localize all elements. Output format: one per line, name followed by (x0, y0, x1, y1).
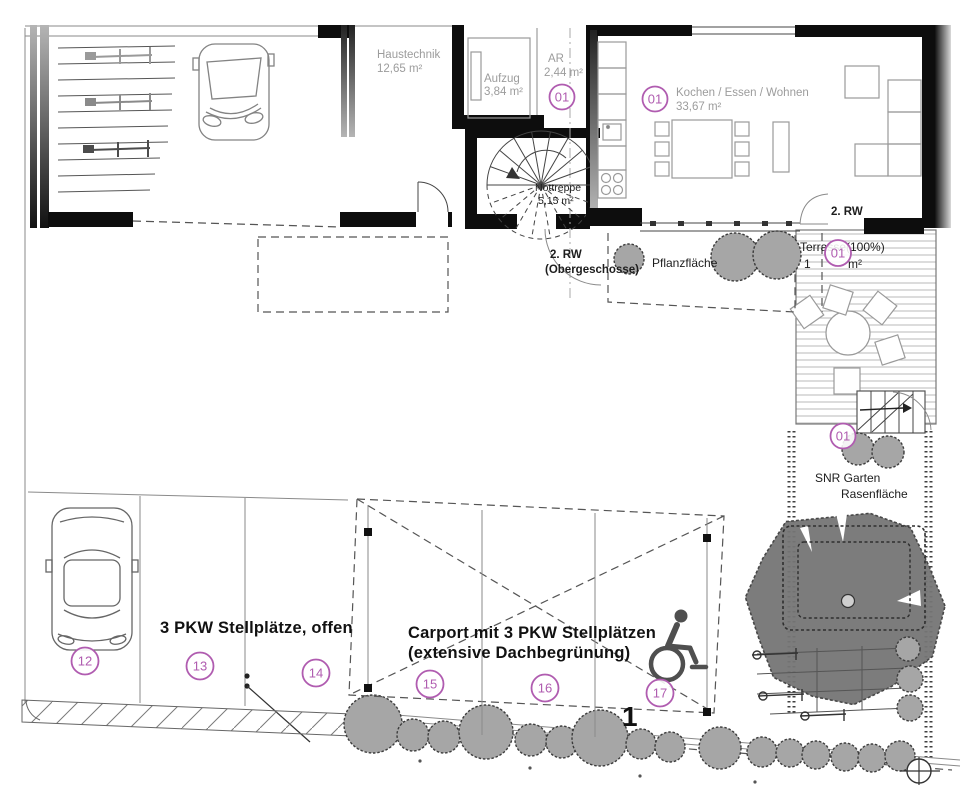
unit-badge-ar: 01 (550, 85, 575, 110)
garage (30, 25, 355, 228)
svg-text:16: 16 (538, 681, 552, 696)
room-area-haustechnik: 12,65 m² (377, 63, 423, 75)
room-label-wohnen: Kochen / Essen / Wohnen (676, 87, 809, 99)
svg-text:13: 13 (193, 659, 207, 674)
parking-badge-14: 14 (303, 660, 330, 687)
upper-floor-outline-dashed (258, 237, 448, 312)
unit-badge-garten: 01 (831, 424, 856, 449)
parking-badge-13: 13 (187, 653, 214, 680)
room-area-aufzug: 3,84 m² (484, 86, 523, 98)
wheelchair-icon (651, 610, 706, 681)
label-rw-stair: 2. RW (550, 249, 582, 261)
svg-text:01: 01 (555, 90, 569, 105)
room-area-nottreppe: 5,15 m² (538, 195, 574, 207)
label-rasenflaeche: Rasenfläche (841, 487, 908, 501)
sideboard (773, 122, 789, 172)
svg-text:01: 01 (836, 429, 850, 444)
car-top-view (46, 508, 138, 650)
sidewalk-hatched-strip (22, 700, 352, 736)
parking-badge-12: 12 (72, 648, 99, 675)
carport-post (703, 708, 711, 716)
carport-post (703, 534, 711, 542)
tree-trunk (842, 595, 855, 608)
kitchen-counter (598, 42, 626, 198)
svg-text:14: 14 (309, 666, 323, 681)
label-pflanzflaeche: Pflanzfläche (652, 256, 718, 270)
room-label-haustechnik: Haustechnik (377, 49, 441, 61)
carport-post (364, 684, 372, 692)
unit-badge-wohnen: 01 (643, 87, 668, 112)
label-snr-garten: SNR Garten (815, 471, 880, 485)
svg-text:12: 12 (78, 654, 92, 669)
room-label-ar: AR (548, 53, 564, 65)
bike-rack-lines (58, 46, 175, 192)
label-terrasse-area-prefix: 1 (804, 257, 811, 271)
terrace (790, 230, 936, 433)
room-area-wohnen: 33,67 m² (676, 101, 722, 113)
parking-badge-17: 17 (647, 680, 674, 707)
parking-badge-16: 16 (532, 675, 559, 702)
bush (753, 231, 801, 279)
label-terrasse-area-unit: m² (848, 257, 862, 271)
svg-text:17: 17 (653, 686, 667, 701)
label-rw-top: 2. RW (831, 206, 863, 218)
sofa-set (845, 66, 921, 176)
carport-post (364, 528, 372, 536)
svg-text:01: 01 (648, 92, 662, 107)
dining-set (655, 120, 749, 178)
label-rw-stair-2: (Obergeschosse) (545, 264, 639, 276)
label-marker-1: 1 (622, 701, 638, 732)
svg-text:01: 01 (831, 246, 845, 261)
window-band (640, 221, 800, 231)
parking-badge-15: 15 (417, 671, 444, 698)
car-front-view (193, 44, 274, 140)
floor-plan-page: Haustechnik 12,65 m² Aufzug 3,84 m² AR 2… (0, 0, 974, 804)
label-carport-2: (extensive Dachbegrünung) (408, 644, 630, 662)
kitchen-living (586, 25, 951, 234)
label-carport-1: Carport mit 3 PKW Stellplätzen (408, 624, 656, 642)
label-stellplaetze-offen: 3 PKW Stellplätze, offen (160, 619, 353, 637)
room-label-nottreppe: Nottreppe (535, 182, 581, 194)
floor-plan-drawing: Haustechnik 12,65 m² Aufzug 3,84 m² AR 2… (0, 0, 974, 804)
room-area-ar: 2,44 m² (544, 67, 583, 79)
stove (598, 170, 626, 198)
bush (872, 436, 904, 468)
svg-text:15: 15 (423, 677, 437, 692)
room-label-aufzug: Aufzug (484, 73, 520, 85)
bush (711, 233, 759, 281)
terrace-steps (857, 391, 931, 433)
